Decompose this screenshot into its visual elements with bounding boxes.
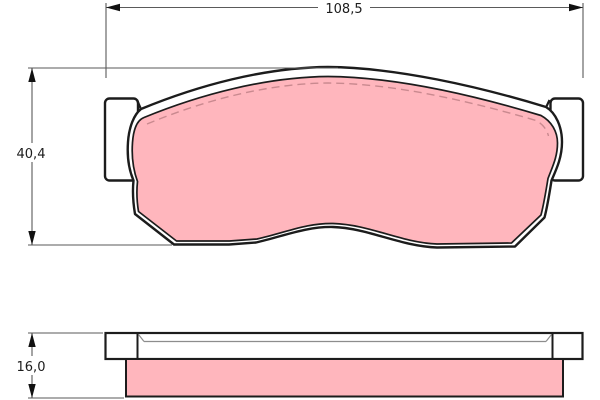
dim-arrowhead-up bbox=[28, 68, 35, 82]
dimension-height-label: 40,4 bbox=[17, 147, 46, 162]
dim-arrowhead-up bbox=[28, 333, 35, 347]
side-backing-plate bbox=[106, 333, 583, 359]
dimension-width-label: 108,5 bbox=[325, 2, 362, 17]
side-friction-material bbox=[126, 359, 563, 397]
dim-arrowhead-right bbox=[569, 4, 583, 11]
brake-pad-technical-drawing: 108,5 40,4 16,0 bbox=[0, 0, 600, 400]
dim-arrowhead-down bbox=[28, 231, 35, 245]
friction-material bbox=[132, 77, 557, 245]
backing-plate-notch-right bbox=[546, 100, 550, 108]
dim-arrowhead-down bbox=[28, 384, 35, 398]
side-view bbox=[106, 333, 583, 397]
drawing-canvas: 108,5 40,4 16,0 bbox=[0, 0, 600, 400]
dim-arrowhead-left bbox=[106, 4, 120, 11]
front-view bbox=[105, 67, 583, 248]
dimension-thickness-label: 16,0 bbox=[17, 360, 46, 375]
page: { "drawing": { "dimensions": { "overall_… bbox=[0, 0, 600, 400]
